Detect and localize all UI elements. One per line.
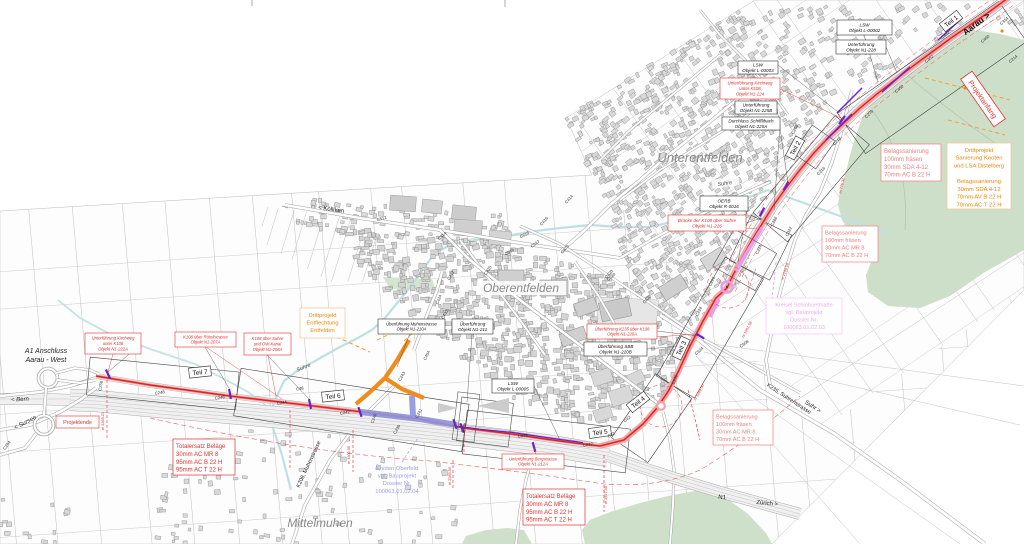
svg-text:Objekt R-0016: Objekt R-0016 [709,204,739,209]
svg-text:Sanierung Knoten: Sanierung Knoten [955,156,1002,162]
svg-text:30mm AC MR 8: 30mm AC MR 8 [176,452,219,458]
svg-text:Überführung Muhenstrasse: Überführung Muhenstrasse [386,321,437,326]
svg-text:Totalersatz Beläge: Totalersatz Beläge [526,494,576,500]
svg-text:Totalersatz Beläge: Totalersatz Beläge [176,444,226,450]
svg-text:Überführung SBB: Überführung SBB [597,343,633,349]
svg-text:100063.01.02.04: 100063.01.02.04 [375,489,419,495]
svg-text:95mm AC T 22 H: 95mm AC T 22 H [526,518,572,524]
svg-text:Unterführung Kirchweg: Unterführung Kirchweg [728,81,773,86]
svg-text:95mm AC T 22 H: 95mm AC T 22 H [176,468,222,474]
svg-text:Dossier Nr.: Dossier Nr. [790,318,818,324]
svg-text:Objekt N1-208A: Objekt N1-208A [253,347,283,352]
svg-text:Unterführung: Unterführung [743,102,770,107]
svg-text:30mm SDA 4-12: 30mm SDA 4-12 [884,165,929,171]
svg-text:Objekt L-00002: Objekt L-00002 [849,28,881,33]
svg-text:Belagssanierung: Belagssanierung [884,149,929,155]
svg-text:Objekt N1-228: Objekt N1-228 [846,48,876,53]
svg-text:LSW: LSW [753,62,764,67]
svg-text:Überführung: Überführung [460,320,486,326]
svg-text:30mm AC MR 8: 30mm AC MR 8 [825,246,864,252]
svg-text:Überführung K235 über K108: Überführung K235 über K108 [595,326,650,331]
svg-text:N1: N1 [718,495,727,502]
svg-text:Entflechtung: Entflechtung [306,321,338,327]
svg-text:Unterführung: Unterführung [848,42,875,47]
svg-text:Objekt L-00005: Objekt L-00005 [497,387,529,392]
svg-text:Belagssanierung: Belagssanierung [825,231,867,237]
svg-text:K108 über Rütelistrasse: K108 über Rütelistrasse [183,334,228,339]
svg-text:Mittelmuhen: Mittelmuhen [287,516,353,530]
svg-text:Dossier Nr.: Dossier Nr. [383,481,412,487]
svg-text:95mm AC B 22 H: 95mm AC B 22 H [526,510,572,516]
svg-text:Objekt N1-207A: Objekt N1-207A [191,340,221,345]
svg-text:100mm fräsen: 100mm fräsen [716,422,752,428]
svg-text:100mm fräsen: 100mm fräsen [825,238,861,244]
svg-text:und OW-Kanal: und OW-Kanal [254,342,282,347]
svg-text:Drittprojekt: Drittprojekt [965,148,994,154]
svg-text:Objekt N1-220B: Objekt N1-220B [599,350,632,355]
svg-text:Belagssanierung: Belagssanierung [716,415,758,421]
svg-text:Objekt N1-211: Objekt N1-211 [458,327,488,332]
svg-text:Unterführung Bergstrasse: Unterführung Bergstrasse [509,456,558,461]
svg-text:Objekt N1-210A: Objekt N1-210A [397,327,427,332]
svg-text:100mm fräsen: 100mm fräsen [884,157,922,163]
svg-text:70mm AC B 22 H: 70mm AC B 22 H [884,173,930,179]
svg-text:m 2677.00: m 2677.00 [604,486,608,504]
svg-text:m 2585.50: m 2585.50 [448,467,452,485]
svg-text:OERB: OERB [717,198,730,203]
svg-text:m 4365.21: m 4365.21 [101,412,105,430]
svg-text:Objekt N1-212A: Objekt N1-212A [518,462,548,467]
svg-text:Unterentfelden: Unterentfelden [657,150,742,165]
svg-text:Unterführung Kirchweg: Unterführung Kirchweg [92,336,135,341]
svg-text:Aarau - West: Aarau - West [25,357,68,364]
svg-text:70mm AC B 22 H: 70mm AC B 22 H [716,437,759,443]
svg-text:< Bern: < Bern [11,397,30,404]
svg-text:Drittprojekt: Drittprojekt [308,313,336,319]
svg-text:K108 über Suhre: K108 über Suhre [252,336,284,341]
svg-text:A1 Anschluss: A1 Anschluss [24,348,68,355]
svg-text:Objekt N1-225B: Objekt N1-225B [740,108,773,113]
svg-text:LSW: LSW [860,22,871,27]
svg-text:Brücke der K108 über Suhre: Brücke der K108 über Suhre [678,218,737,223]
svg-text:Oberentfelden: Oberentfelden [483,281,559,295]
svg-text:und LSA Distelberg: und LSA Distelberg [954,164,1004,170]
svg-text:m 3300.00: m 3300.00 [347,446,351,464]
svg-text:Durchlass Schifflibach: Durchlass Schifflibach [728,118,774,123]
svg-text:vgl. Bauprojekt: vgl. Bauprojekt [378,474,417,480]
svg-text:Objekt N1-222A: Objekt N1-222A [98,346,128,351]
svg-text:30mm AC MR 8: 30mm AC MR 8 [526,502,569,508]
svg-text:Kreisel Schinhuetmatte: Kreisel Schinhuetmatte [775,303,833,309]
svg-text:Objekt L-00003: Objekt L-00003 [742,68,774,73]
svg-text:vgl. Bauprojekt: vgl. Bauprojekt [785,310,822,316]
svg-text:Knoten Oberfeld: Knoten Oberfeld [376,466,418,472]
svg-text:70mm AC B 22 H: 70mm AC B 22 H [825,253,868,259]
svg-text:unter K108: unter K108 [739,86,761,91]
svg-text:70mm AC T 22 H: 70mm AC T 22 H [957,203,1002,209]
svg-text:95mm AC B 22 H: 95mm AC B 22 H [176,460,222,466]
svg-text:100063.01.02.03: 100063.01.02.03 [783,325,825,331]
svg-text:Projektende: Projektende [63,420,92,426]
svg-text:30mm SDA 4-12: 30mm SDA 4-12 [957,187,1000,193]
svg-text:30mm AC MR 8: 30mm AC MR 8 [716,430,755,436]
svg-text:unter K108: unter K108 [103,341,124,346]
svg-text:LSW: LSW [508,381,519,386]
svg-text:Belagssanierung: Belagssanierung [957,179,1001,185]
svg-text:Objekt N1-220A: Objekt N1-220A [607,332,637,337]
svg-text:Objekt N1-224: Objekt N1-224 [736,92,765,97]
svg-text:Entfelden: Entfelden [310,328,335,334]
svg-text:Objekt N1-225A: Objekt N1-225A [735,124,768,129]
svg-text:Objekt N1-226: Objekt N1-226 [692,224,722,229]
svg-text:70mm AV B 22 H: 70mm AV B 22 H [957,195,1002,201]
